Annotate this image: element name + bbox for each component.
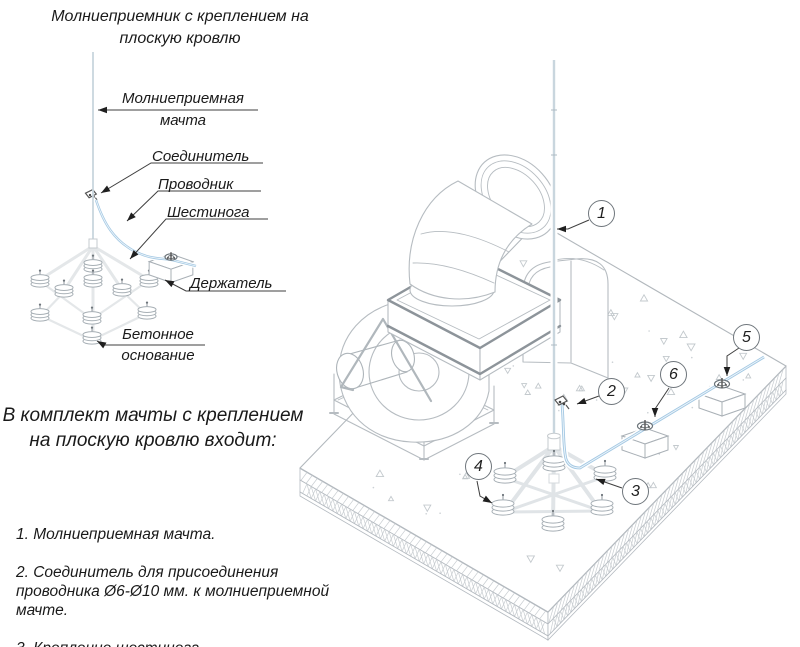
roof-dot-mark xyxy=(647,412,649,414)
conductor-clamp xyxy=(165,252,177,260)
roof-dot-mark xyxy=(425,513,427,515)
callout-2-connector: 2 xyxy=(598,378,625,405)
concrete-weight xyxy=(31,304,49,322)
label-connector: Соединитель xyxy=(152,146,282,168)
concrete-weight xyxy=(138,302,156,320)
roof-dot-mark xyxy=(743,379,745,381)
holder-clamp-left xyxy=(165,252,177,260)
lightning-mast xyxy=(551,60,557,446)
kit-item-1: 1. Молниеприемная мачта. xyxy=(16,525,340,544)
concrete-weight xyxy=(83,307,101,325)
label-hexapod: Шестинога xyxy=(167,202,287,224)
roof-dot-mark xyxy=(373,487,375,489)
kit-item-2: 2. Соединитель для присоединения проводн… xyxy=(16,563,340,620)
callout-5-holder: 5 xyxy=(733,324,760,351)
callout-6-holder: 6 xyxy=(660,361,687,388)
roof-dot-mark xyxy=(439,512,441,514)
roof-dot-mark xyxy=(692,407,694,409)
roof-dot-mark xyxy=(648,330,650,332)
callout-4-concrete-base: 4 xyxy=(465,453,492,480)
label-mast: Молниеприемная мачта xyxy=(107,88,259,132)
roof-dot-mark xyxy=(459,474,461,476)
kit-item-3: 3. Крепление шестинога xyxy=(16,639,340,647)
roof-dot-mark xyxy=(596,399,598,401)
label-concrete-base: Бетонное основание xyxy=(100,324,216,366)
page-title: Молниеприемник с креплением на плоскую к… xyxy=(25,6,335,50)
label-holder: Держатель xyxy=(190,273,300,295)
concrete-weight xyxy=(31,270,49,288)
concrete-weight xyxy=(84,270,102,288)
roof-dot-mark xyxy=(612,361,614,363)
callout-3-hexapod: 3 xyxy=(622,478,649,505)
roof-dot-mark xyxy=(513,365,515,367)
kit-heading: В комплект мачты с креплением на плоскую… xyxy=(0,403,306,453)
kit-list: 1. Молниеприемная мачта. 2. Соединитель … xyxy=(16,506,340,647)
roof-dot-mark xyxy=(691,357,693,359)
callout-1-mast: 1 xyxy=(588,200,615,227)
mast-connector xyxy=(86,190,99,202)
label-conductor: Проводник xyxy=(158,174,278,196)
technical-diagram-page: Молниеприемник с креплением на плоскую к… xyxy=(0,0,800,647)
